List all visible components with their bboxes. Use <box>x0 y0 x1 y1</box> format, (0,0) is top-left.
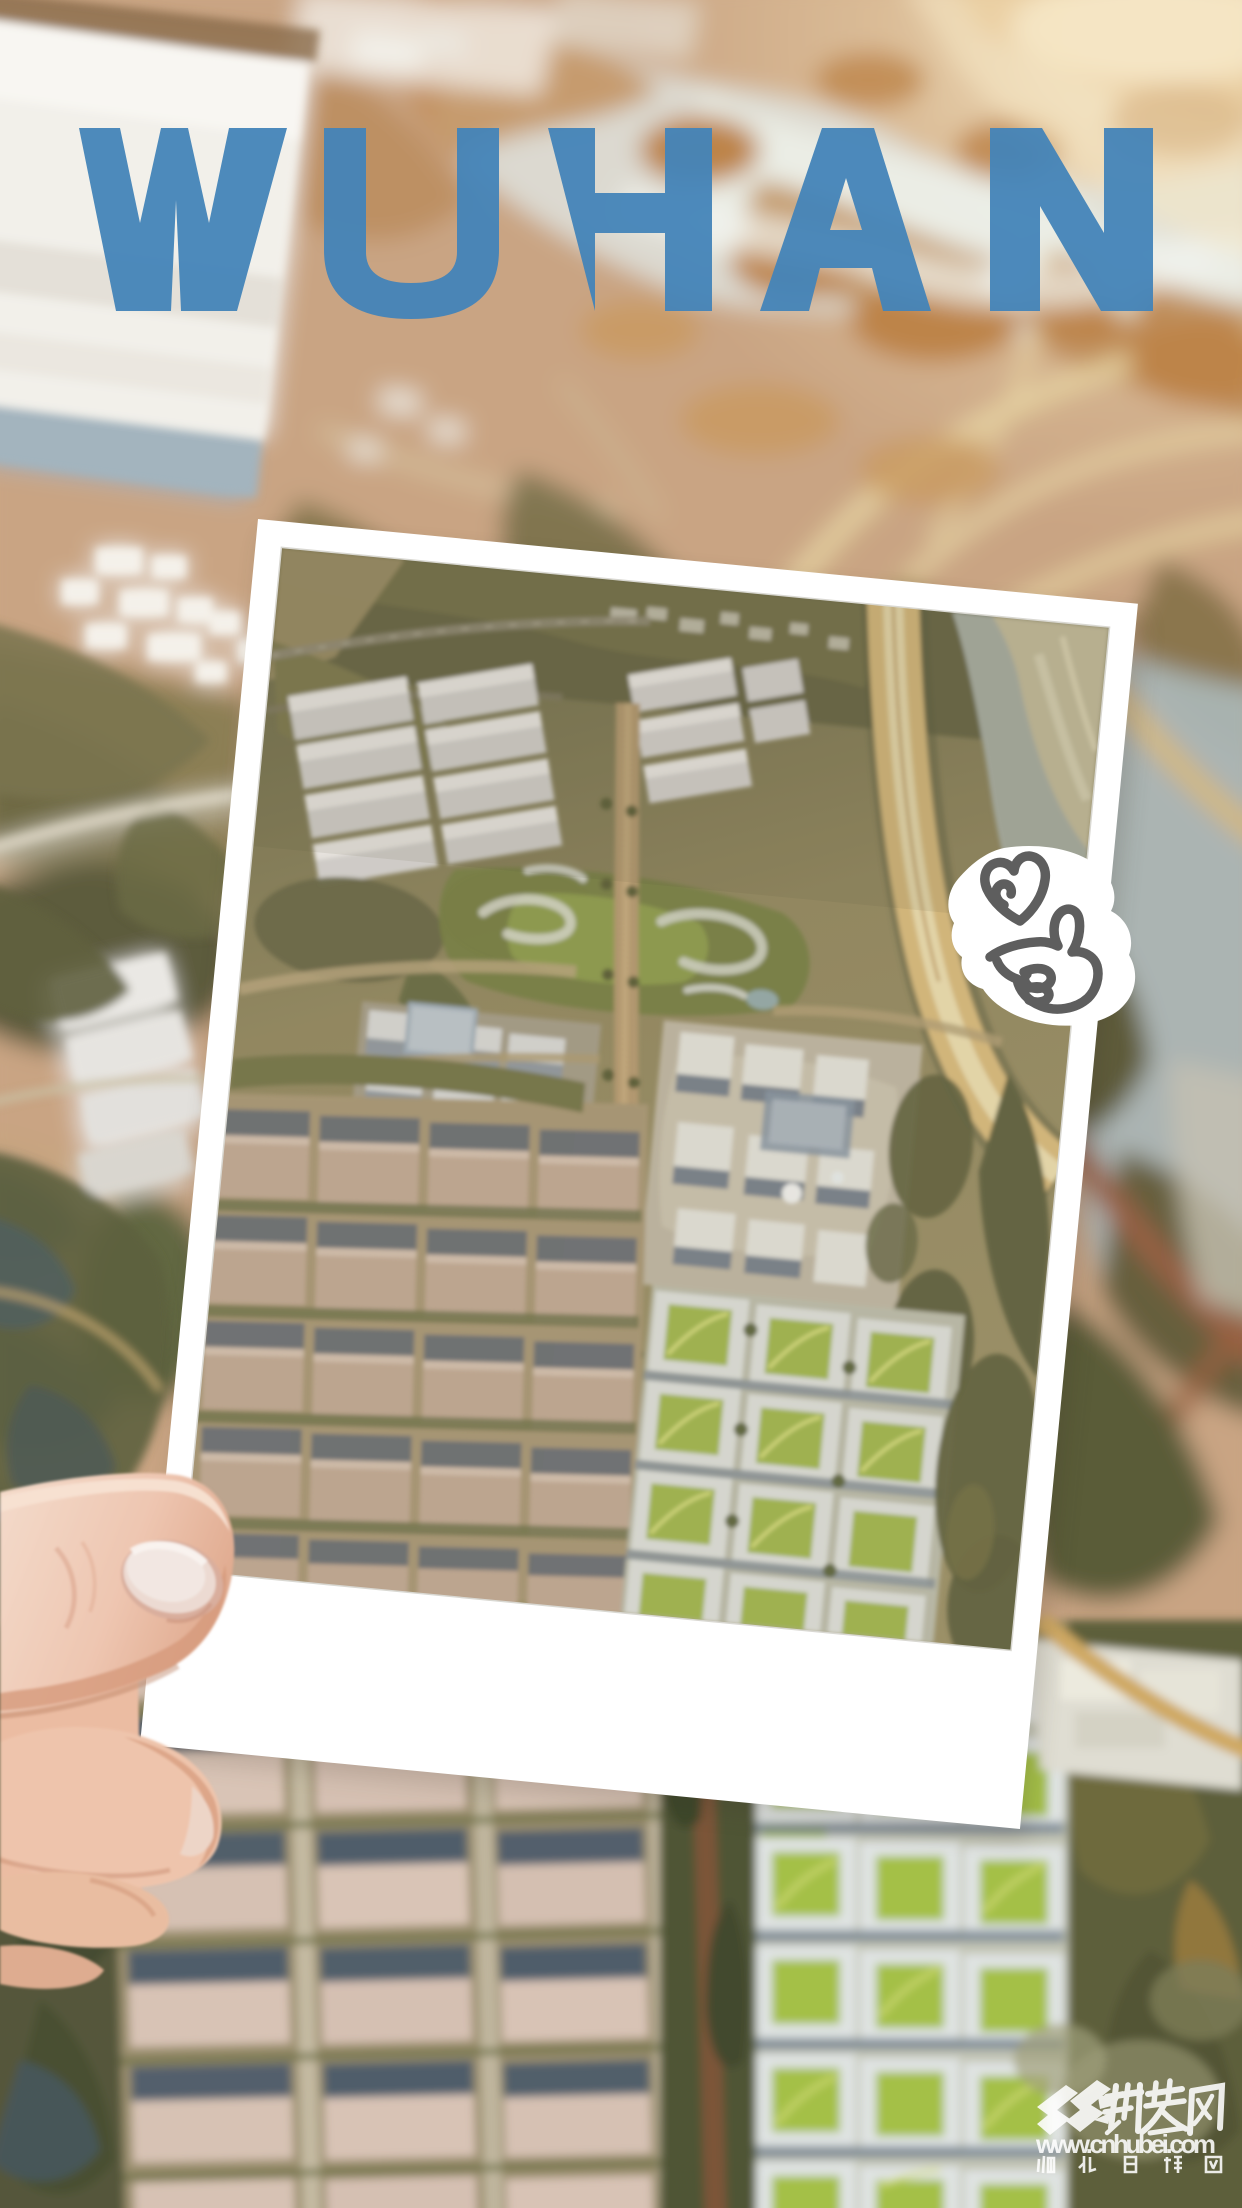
svg-text:www.cnhubei.com: www.cnhubei.com <box>1035 2129 1216 2159</box>
